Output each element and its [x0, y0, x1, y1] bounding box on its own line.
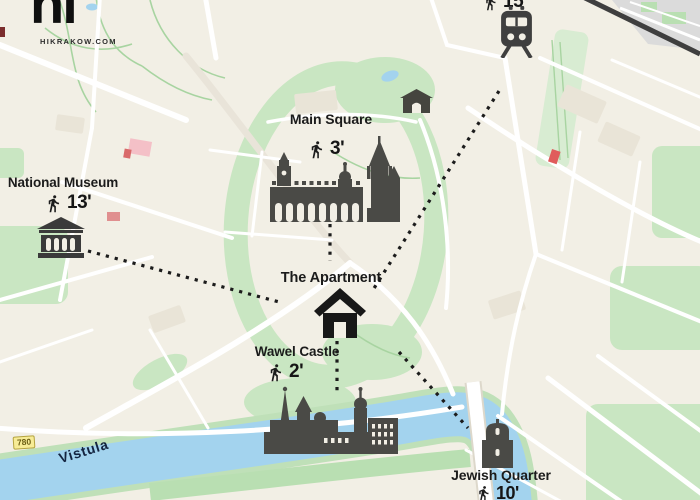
- krakow-walking-map: hi HIKRAKOW.COM 15' Main Square 3': [0, 0, 700, 500]
- wawel-castle-walk-time: 2': [266, 361, 303, 383]
- apartment-label: The Apartment: [268, 271, 394, 287]
- national-museum-label: National Museum: [4, 176, 122, 191]
- city-gate-icon: [400, 89, 433, 113]
- logo: hi: [30, 0, 76, 32]
- website-url: HIKRAKOW.COM: [40, 37, 117, 46]
- museum-building-icon: [37, 217, 85, 258]
- walk-time-label: 13': [67, 192, 91, 214]
- park-pond: [86, 4, 98, 11]
- wawel-castle-icon: [264, 382, 398, 454]
- walk-time-label: 10': [496, 483, 519, 500]
- jewish-quarter-walk-time: 10': [475, 483, 519, 500]
- wawel-castle-label: Wawel Castle: [240, 345, 354, 360]
- house-icon: [314, 288, 366, 338]
- synagogue-icon: [481, 419, 514, 468]
- main-square-label: Main Square: [266, 112, 396, 127]
- train-icon: [499, 6, 534, 58]
- walking-icon: [475, 485, 492, 500]
- cloth-hall-icon: [270, 152, 363, 222]
- walking-icon: [266, 363, 285, 382]
- national-museum-walk-time: 13': [44, 192, 91, 214]
- walking-icon: [44, 194, 63, 213]
- walking-icon: [482, 0, 499, 11]
- road-number-badge: 780: [13, 435, 36, 450]
- jewish-quarter-label: Jewish Quarter: [444, 468, 558, 483]
- walk-time-label: 2': [289, 361, 303, 383]
- st-marys-basilica-icon: [367, 136, 400, 222]
